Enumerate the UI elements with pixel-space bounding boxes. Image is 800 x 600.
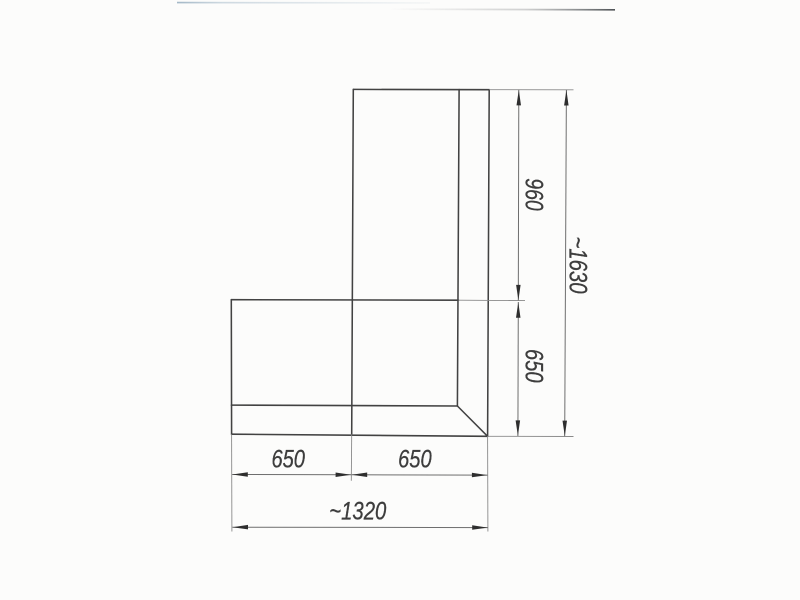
svg-text:~1630: ~1630 (564, 237, 591, 294)
svg-text:650: 650 (398, 447, 432, 474)
svg-text:650: 650 (271, 447, 305, 474)
svg-text:~1320: ~1320 (329, 498, 386, 525)
svg-text:960: 960 (520, 178, 547, 211)
svg-text:650: 650 (519, 349, 546, 383)
